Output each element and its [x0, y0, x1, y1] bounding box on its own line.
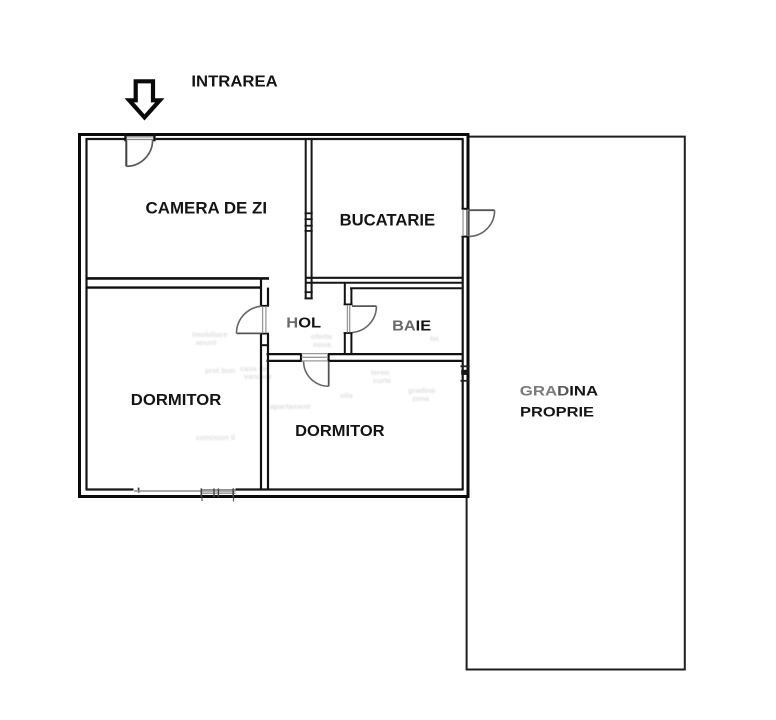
svg-text:DORMITOR: DORMITOR	[131, 392, 222, 409]
svg-text:anunt: anunt	[196, 338, 217, 347]
svg-text:curte: curte	[373, 376, 391, 385]
svg-text:HOL: HOL	[286, 316, 321, 332]
svg-text:DORMITOR: DORMITOR	[295, 423, 385, 440]
svg-text:tei: tei	[430, 334, 439, 343]
svg-text:CAMERA DE ZI: CAMERA DE ZI	[146, 199, 268, 218]
svg-text:apartament: apartament	[270, 402, 311, 411]
svg-text:BAIE: BAIE	[392, 319, 431, 335]
svg-text:INTRAREA: INTRAREA	[191, 73, 278, 90]
svg-text:zona: zona	[412, 394, 430, 403]
svg-text:BUCATARIE: BUCATARIE	[340, 210, 436, 229]
svg-text:GRADINA: GRADINA	[520, 382, 598, 398]
svg-text:vila: vila	[340, 391, 353, 400]
svg-text:PROPRIE: PROPRIE	[520, 403, 594, 419]
svg-text:comision 0: comision 0	[196, 433, 235, 442]
svg-text:noua: noua	[313, 340, 332, 349]
svg-text:pret bun: pret bun	[205, 366, 235, 375]
